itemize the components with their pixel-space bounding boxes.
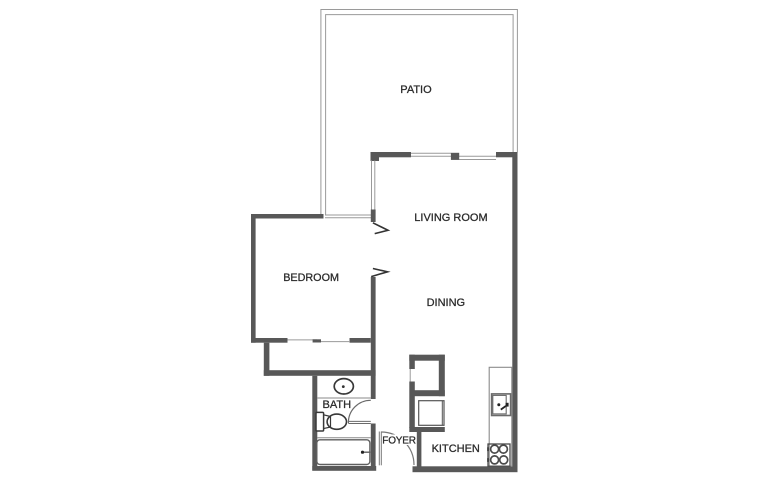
svg-text:FOYER: FOYER	[382, 436, 415, 447]
svg-text:BEDROOM: BEDROOM	[283, 272, 339, 284]
svg-text:BATH: BATH	[323, 399, 352, 411]
svg-text:LIVING ROOM: LIVING ROOM	[414, 212, 487, 224]
svg-text:DINING: DINING	[427, 297, 466, 309]
svg-text:PATIO: PATIO	[400, 84, 432, 96]
svg-text:KITCHEN: KITCHEN	[432, 443, 480, 455]
